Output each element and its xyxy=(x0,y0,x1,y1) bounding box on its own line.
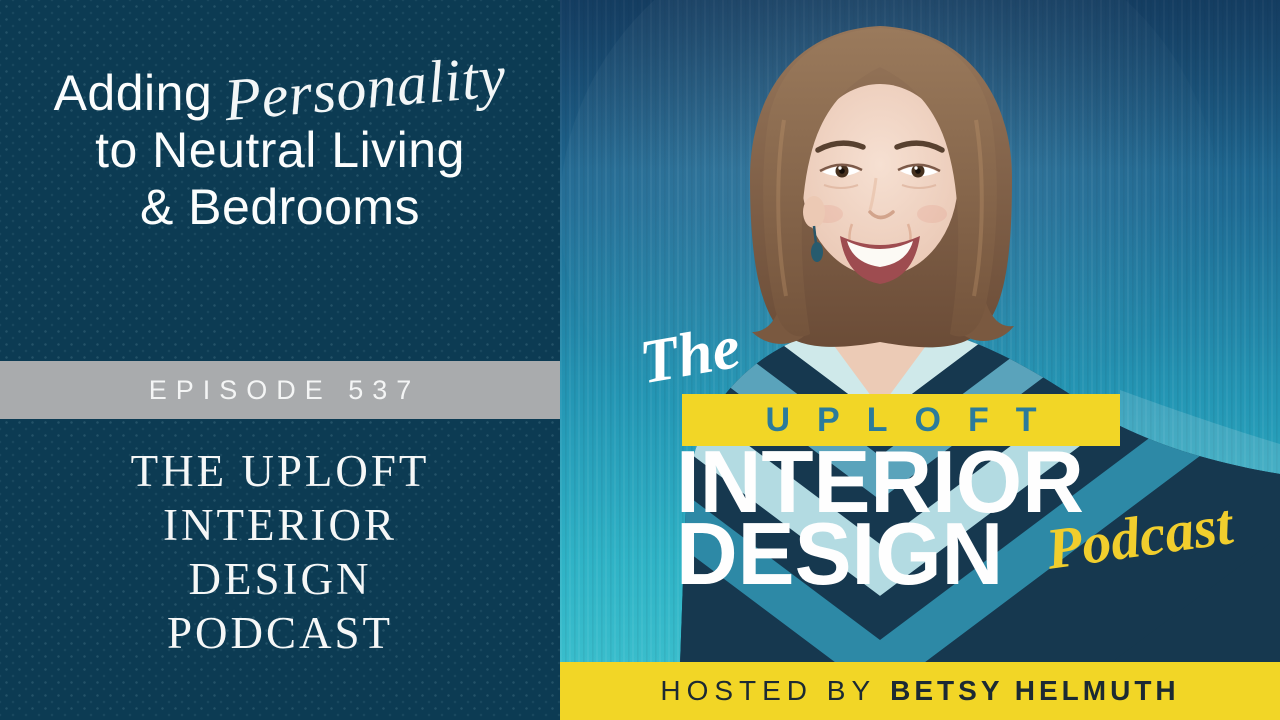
hosted-by-band: HOSTED BY BETSY HELMUTH xyxy=(560,662,1280,720)
host-name: BETSY HELMUTH xyxy=(890,675,1180,707)
headline-line-3: & Bedrooms xyxy=(0,179,560,236)
ear xyxy=(803,196,825,228)
headline-line-1: AddingPersonality xyxy=(0,62,560,122)
hosted-by-label: HOSTED BY xyxy=(660,675,876,707)
headline-line-2: to Neutral Living xyxy=(0,122,560,179)
episode-number-band: EPISODE 537 xyxy=(0,361,560,419)
episode-headline: AddingPersonality to Neutral Living & Be… xyxy=(0,62,560,236)
blush-right xyxy=(917,205,947,223)
left-panel: AddingPersonality to Neutral Living & Be… xyxy=(0,0,560,720)
right-eye-gleam xyxy=(914,166,917,169)
logo-word-the: The xyxy=(635,316,744,394)
show-title: THE UPLOFT INTERIOR DESIGN PODCAST xyxy=(0,444,560,660)
headline-word-personality: Personality xyxy=(222,48,508,129)
earring-drop xyxy=(811,242,823,262)
show-title-line-2: INTERIOR xyxy=(0,498,560,552)
show-title-line-4: PODCAST xyxy=(0,606,560,660)
left-eye-gleam xyxy=(838,166,841,169)
podcast-cover: AddingPersonality to Neutral Living & Be… xyxy=(0,0,1280,720)
headline-word-adding: Adding xyxy=(54,65,213,121)
logo-word-design: DESIGN xyxy=(676,510,1003,598)
episode-number-label: EPISODE 537 xyxy=(140,375,421,406)
right-panel: The UPLOFT INTERIOR DESIGN Podcast HOSTE… xyxy=(560,0,1280,720)
show-title-line-1: THE UPLOFT xyxy=(0,444,560,498)
show-title-line-3: DESIGN xyxy=(0,552,560,606)
